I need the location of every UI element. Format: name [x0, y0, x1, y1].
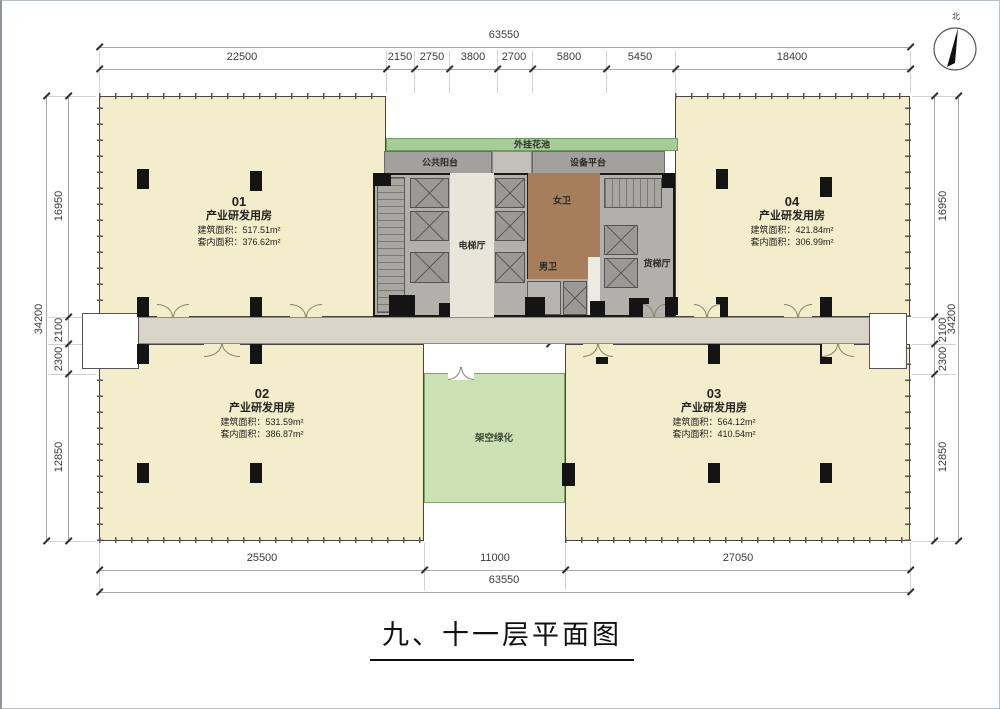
dim-top-seg-4: 3800: [461, 51, 485, 63]
dim-left-seg-3: 2300: [53, 347, 65, 371]
dim-left-seg-4: 12850: [53, 442, 65, 473]
dim-bottom-seg-3: 27050: [723, 552, 754, 564]
column: [708, 344, 720, 364]
door-room03-b: [822, 344, 854, 357]
extension-line: [606, 51, 607, 93]
floor-plan-page: 63550 22500 2150 2750 3800 2700 5800 545…: [0, 0, 1000, 709]
dim-tick: [907, 588, 914, 595]
extension-line: [99, 51, 100, 93]
dim-top-seg-7: 5450: [628, 51, 652, 63]
column: [137, 169, 149, 189]
dim-line-right-total: [958, 96, 959, 541]
column: [708, 463, 720, 483]
dim-line-bottom-segments: [99, 570, 910, 571]
core-wall-chunk: [439, 303, 450, 317]
room-04-inner-area: 套内面积：306.99m²: [750, 237, 833, 248]
platform-gap: [492, 151, 532, 174]
dim-top-seg-6: 5800: [557, 51, 581, 63]
compass-north-label: 北: [952, 11, 960, 22]
dim-line-left-total: [46, 96, 47, 541]
elevator-shaft-b2: [495, 211, 525, 241]
core-wall-chunk: [373, 173, 391, 186]
dim-tick: [955, 537, 962, 544]
flower-bed-label: 外挂花池: [514, 138, 550, 151]
service-shaft: [563, 281, 587, 315]
column: [137, 344, 149, 364]
dim-line-top-total: [99, 47, 910, 48]
room-03-number: 03: [672, 386, 755, 402]
window-ticks-room01-top: [99, 93, 386, 99]
column: [250, 297, 262, 317]
room-04-label: 04 产业研发用房 建筑面积：421.84m² 套内面积：306.99m²: [750, 194, 833, 249]
dim-line-bottom-total: [99, 592, 910, 593]
room-03: [565, 344, 910, 541]
dim-right-seg-4: 12850: [937, 442, 949, 473]
core-wall-chunk: [525, 297, 545, 317]
extension-line: [675, 51, 676, 93]
freight-elevator-hall-label: 货梯厅: [643, 257, 670, 270]
room-03-build-area: 建筑面积：564.12m²: [672, 417, 755, 428]
window-ticks-room03-right: [905, 344, 911, 541]
freight-elevator-shaft-1: [604, 225, 638, 255]
elevator-shaft-b1: [495, 178, 525, 208]
room-01-label: 01 产业研发用房 建筑面积：517.51m² 套内面积：376.62m²: [197, 194, 280, 249]
door-room01-a: [157, 304, 189, 317]
column: [562, 463, 575, 486]
dim-left-seg-1: 16950: [53, 191, 65, 222]
dim-right-seg-1: 16950: [937, 191, 949, 222]
freight-elevator-shaft-2: [604, 258, 638, 288]
door-green-area: [448, 367, 474, 380]
elevated-green-label: 架空绿化: [475, 430, 513, 444]
page-title: 九、十一层平面图: [370, 613, 634, 661]
column: [250, 463, 262, 483]
core-wall-chunk: [665, 297, 678, 315]
elevator-hall-label: 电梯厅: [458, 239, 485, 252]
men-wc-label: 男卫: [539, 260, 557, 273]
dim-bottom-seg-1: 25500: [247, 552, 278, 564]
dim-tick: [907, 43, 914, 50]
room-02-type: 产业研发用房: [220, 402, 303, 416]
extension-line: [910, 51, 911, 93]
column: [137, 463, 149, 483]
room-02-number: 02: [220, 386, 303, 402]
dim-right-total: 34200: [946, 304, 958, 335]
corridor: [139, 317, 869, 344]
dim-top-seg-1: 22500: [227, 51, 258, 63]
dim-top-total: 63550: [489, 29, 520, 41]
dim-bottom-total: 63550: [489, 574, 520, 586]
equipment-platform-label: 设备平台: [570, 156, 606, 169]
room-01-inner-area: 套内面积：376.62m²: [197, 237, 280, 248]
dim-top-seg-3: 2750: [420, 51, 444, 63]
room-02-inner-area: 套内面积：386.87m²: [220, 429, 303, 440]
corridor-balcony-left: [82, 313, 139, 369]
dim-top-seg-2: 2150: [388, 51, 412, 63]
column: [250, 344, 262, 364]
dim-top-seg-5: 2700: [502, 51, 526, 63]
room-03-inner-area: 套内面积：410.54m²: [672, 429, 755, 440]
room-04-number: 04: [750, 194, 833, 210]
extension-line: [48, 96, 96, 97]
dim-left-total: 34200: [33, 304, 45, 335]
room-04-build-area: 建筑面积：421.84m²: [750, 225, 833, 236]
column: [716, 169, 728, 189]
extension-line: [449, 51, 450, 93]
room-02-label: 02 产业研发用房 建筑面积：531.59m² 套内面积：386.87m²: [220, 386, 303, 441]
room-04-type: 产业研发用房: [750, 210, 833, 224]
window-ticks-room04-top: [675, 93, 910, 99]
room-02-build-area: 建筑面积：531.59m²: [220, 417, 303, 428]
elevator-shaft-a3: [410, 252, 449, 283]
dim-bottom-seg-2: 11000: [480, 552, 510, 564]
room-03-label: 03 产业研发用房 建筑面积：564.12m² 套内面积：410.54m²: [672, 386, 755, 441]
door-room02: [204, 344, 240, 357]
extension-line: [532, 51, 533, 93]
stairs-left: [377, 177, 405, 313]
extension-line: [48, 541, 96, 542]
elevator-shaft-b3: [495, 252, 525, 283]
room-01-number: 01: [197, 194, 280, 210]
core-wall-chunk: [389, 295, 415, 316]
column: [820, 297, 832, 317]
window-ticks-room02-bottom: [99, 537, 424, 543]
window-ticks-room04-right: [905, 96, 911, 317]
dim-left-seg-2: 2100: [53, 318, 65, 342]
stairs-right: [604, 178, 662, 208]
compass-icon: [930, 23, 980, 73]
dim-top-seg-8: 18400: [777, 51, 808, 63]
dim-line-right-segments: [934, 96, 935, 541]
window-ticks-room01-left: [97, 96, 103, 317]
public-balcony-label: 公共阳台: [422, 156, 458, 169]
women-wc-label: 女卫: [553, 194, 571, 207]
window-ticks-room02-left: [97, 344, 103, 541]
dim-line-top-segments: [99, 69, 910, 70]
room-01-type: 产业研发用房: [197, 210, 280, 224]
elevator-shaft-a2: [410, 211, 449, 241]
extension-line: [48, 374, 96, 375]
window-ticks-room03-bottom: [565, 537, 910, 543]
core-wall-chunk: [662, 173, 675, 188]
room-01-build-area: 建筑面积：517.51m²: [197, 225, 280, 236]
extension-line: [414, 51, 415, 93]
door-room01-b: [290, 304, 322, 317]
corridor-balcony-right: [869, 313, 907, 369]
door-room04-a: [643, 304, 665, 317]
core-wall-chunk: [590, 301, 605, 317]
door-room04-b: [694, 304, 720, 317]
dim-line-left-segments: [68, 96, 69, 541]
column: [250, 171, 262, 191]
extension-line: [497, 51, 498, 93]
elevator-shaft-a1: [410, 178, 449, 208]
room-02: [99, 344, 424, 541]
door-room03-a: [583, 344, 613, 357]
door-room04-c: [784, 304, 812, 317]
room-03-type: 产业研发用房: [672, 402, 755, 416]
dim-right-seg-3: 2300: [937, 347, 949, 371]
column: [820, 463, 832, 483]
column: [137, 297, 149, 317]
